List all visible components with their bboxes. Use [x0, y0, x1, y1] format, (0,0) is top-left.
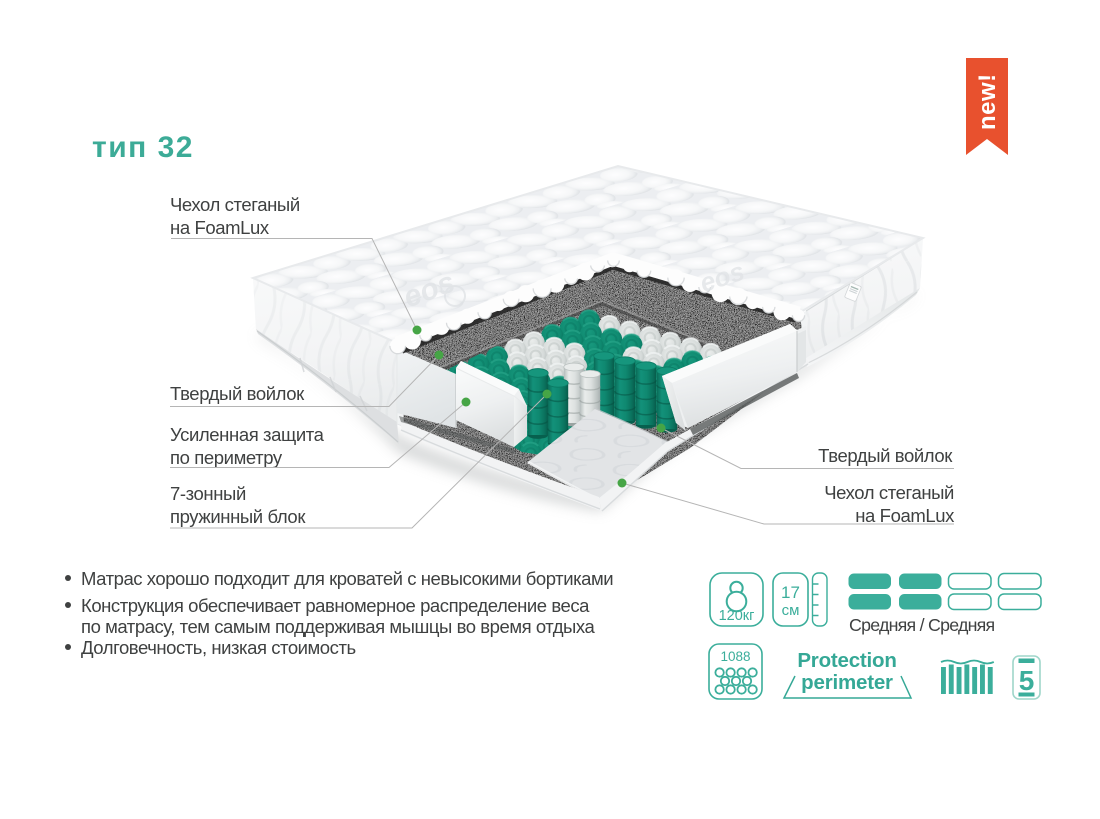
svg-text:1088: 1088 — [720, 649, 750, 664]
svg-text:Усиленная защита: Усиленная защита — [170, 424, 325, 445]
svg-text:Твердый войлок: Твердый войлок — [170, 383, 305, 404]
svg-text:Конструкция обеспечивает равно: Конструкция обеспечивает равномерное рас… — [81, 595, 590, 616]
svg-text:Чехол стеганый: Чехол стеганый — [170, 194, 300, 215]
svg-text:new!: new! — [974, 73, 1001, 130]
svg-text:perimeter: perimeter — [801, 671, 893, 694]
svg-text:Твердый войлок: Твердый войлок — [818, 445, 953, 466]
svg-text:17: 17 — [781, 583, 800, 602]
svg-text:5: 5 — [1019, 665, 1035, 696]
svg-text:Protection: Protection — [797, 649, 896, 672]
svg-text:Средняя / Средняя: Средняя / Средняя — [849, 615, 995, 635]
svg-text:Чехол стеганый: Чехол стеганый — [824, 482, 954, 503]
svg-text:по периметру: по периметру — [170, 447, 283, 468]
svg-text:Матрас хорошо подходит для кро: Матрас хорошо подходит для кроватей с не… — [81, 568, 613, 589]
svg-text:7-зонный: 7-зонный — [170, 483, 246, 504]
svg-text:120кг: 120кг — [719, 608, 755, 624]
svg-text:см: см — [782, 602, 800, 619]
svg-text:пружинный блок: пружинный блок — [170, 506, 306, 527]
svg-text:по матрасу, тем самым поддержи: по матрасу, тем самым поддерживая мышцы … — [81, 616, 595, 637]
svg-text:на FoamLux: на FoamLux — [170, 217, 270, 238]
svg-text:тип 32: тип 32 — [92, 131, 194, 164]
svg-text:на FoamLux: на FoamLux — [855, 505, 955, 526]
svg-text:Долговечность, низкая стоимост: Долговечность, низкая стоимость — [81, 637, 356, 658]
